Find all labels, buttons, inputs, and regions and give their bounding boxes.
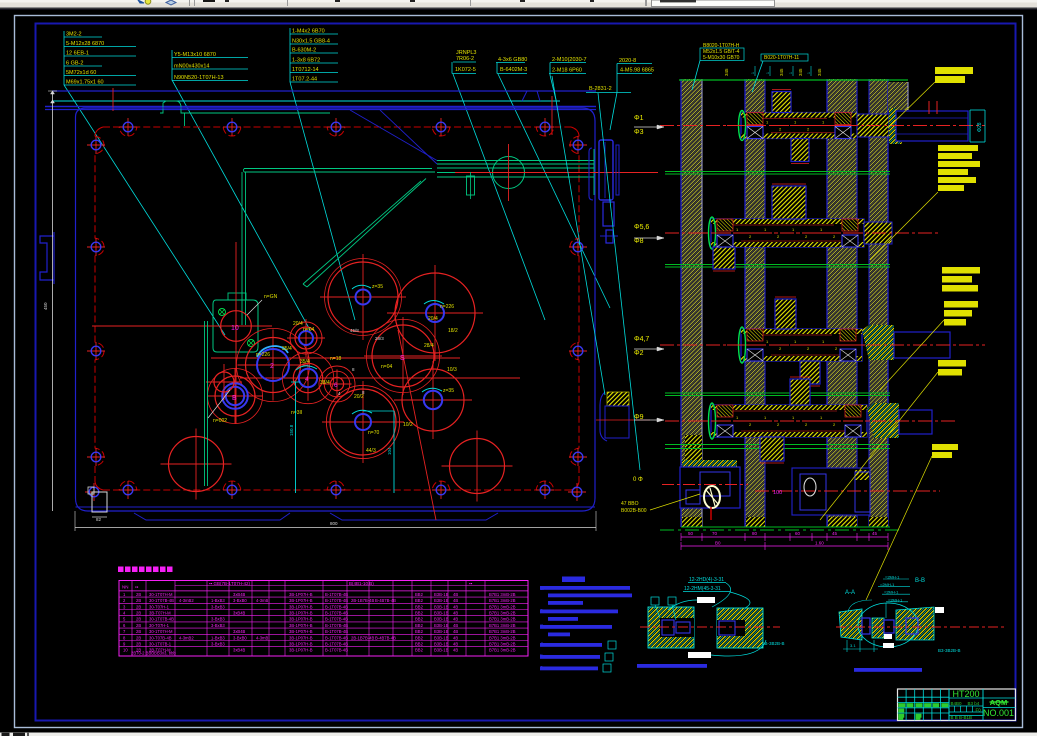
svg-text:BB2: BB2 xyxy=(415,617,424,622)
svg-text:3B-1P07H-B: 3B-1P07H-B xyxy=(289,617,313,622)
svg-text:3-BxB0: 3-BxB0 xyxy=(233,635,247,640)
svg-text:Φ2: Φ2 xyxy=(634,350,644,357)
svg-text:3.: 3. xyxy=(540,624,545,630)
svg-text:A-A: A-A xyxy=(845,590,855,596)
svg-text:B3B-1B: B3B-1B xyxy=(434,629,449,634)
svg-text:1-BxB3: 1-BxB3 xyxy=(211,635,225,640)
svg-text:345: 345 xyxy=(798,68,803,76)
svg-text:45/8: 45/8 xyxy=(350,328,359,333)
svg-text:2B: 2B xyxy=(136,635,141,640)
svg-text:▪▪ GB(7B-1T07H-42): ▪▪ GB(7B-1T07H-42) xyxy=(209,581,250,586)
svg-text:50: 50 xyxy=(688,531,694,536)
svg-text:1: 1 xyxy=(789,72,793,74)
svg-text:104: 104 xyxy=(387,447,392,455)
svg-text:Φ3: Φ3 xyxy=(634,129,644,136)
svg-text:▪▪: ▪▪ xyxy=(135,585,139,590)
svg-text:BB2: BB2 xyxy=(415,598,424,603)
svg-text:n=GN: n=GN xyxy=(264,294,278,300)
svg-text:30-1T07H-M: 30-1T07H-M xyxy=(149,629,173,634)
svg-text:4-3mB: 4-3mB xyxy=(256,635,269,640)
svg-text:1-BxB3: 1-BxB3 xyxy=(211,598,225,603)
svg-text:B7B1 3mB-2B: B7B1 3mB-2B xyxy=(489,617,516,622)
svg-text:▪▪: ▪▪ xyxy=(469,581,473,586)
svg-text:3B-T07H-M: 3B-T07H-M xyxy=(149,611,171,616)
svg-text:3xB4B: 3xB4B xyxy=(233,648,246,653)
svg-text:5.: 5. xyxy=(540,654,545,660)
svg-text:Φ5,6: Φ5,6 xyxy=(634,224,649,231)
svg-text:4B: 4B xyxy=(453,635,458,640)
svg-text:B7B1 3mB-2B: B7B1 3mB-2B xyxy=(489,648,516,653)
svg-text:n=04: n=04 xyxy=(303,327,314,333)
svg-text:345: 345 xyxy=(779,68,784,76)
svg-text:B3 b4: B3 b4 xyxy=(968,701,980,706)
svg-text:3B-1P07H-B: 3B-1P07H-B xyxy=(289,629,313,634)
svg-text:HT200: HT200 xyxy=(952,689,979,699)
svg-text:B4B0: B4B0 xyxy=(951,701,963,706)
svg-text:B3B-1B: B3B-1B xyxy=(434,611,449,616)
svg-text:2B: 2B xyxy=(136,617,141,622)
svg-text:4.: 4. xyxy=(540,642,545,648)
svg-text:B3B-1B: B3B-1B xyxy=(434,623,449,628)
svg-text:6.: 6. xyxy=(540,666,545,672)
svg-text:BB2: BB2 xyxy=(415,642,424,647)
svg-text:2B: 2B xyxy=(136,611,141,616)
svg-text:3-BxB3: 3-BxB3 xyxy=(211,642,225,647)
svg-text:1K072-5: 1K072-5 xyxy=(455,67,476,73)
svg-text:n=226: n=226 xyxy=(256,352,270,358)
svg-text:B-1T07B-4B: B-1T07B-4B xyxy=(325,635,348,640)
svg-text:10/3: 10/3 xyxy=(447,367,457,373)
svg-text:B-1T07B-4B: B-1T07B-4B xyxy=(325,604,348,609)
svg-text:=2MH-1: =2MH-1 xyxy=(888,597,903,602)
svg-text:4B: 4B xyxy=(453,617,458,622)
svg-text:B-4B7B-4B: B-4B7B-4B xyxy=(375,635,396,640)
svg-text:150.8: 150.8 xyxy=(289,424,294,436)
svg-text:4B: 4B xyxy=(453,611,458,616)
svg-text:2B-1B7B-4B: 2B-1B7B-4B xyxy=(351,635,374,640)
svg-text:n=18: n=18 xyxy=(330,356,341,362)
svg-text:10/2: 10/2 xyxy=(403,422,413,428)
svg-text:3B-1P07H-B: 3B-1P07H-B xyxy=(289,623,313,628)
svg-text:45: 45 xyxy=(872,531,878,536)
svg-text:B-1T07B-4B: B-1T07B-4B xyxy=(325,648,348,653)
svg-text:4B: 4B xyxy=(453,598,458,603)
svg-text:B-4B7B-4B: B-4B7B-4B xyxy=(375,598,396,603)
svg-text:3-BxB3: 3-BxB3 xyxy=(211,623,225,628)
svg-text:BB2: BB2 xyxy=(415,629,424,634)
svg-text:B3B-1B: B3B-1B xyxy=(434,648,449,653)
svg-text:z=35: z=35 xyxy=(372,284,383,290)
svg-text:2B: 2B xyxy=(136,623,141,628)
svg-text:4B: 4B xyxy=(453,642,458,647)
svg-text:3.1: 3.1 xyxy=(850,643,856,648)
svg-text:1: 1 xyxy=(766,72,770,74)
svg-text:B3B-1B: B3B-1B xyxy=(434,617,449,622)
svg-text:B-6402M-3: B-6402M-3 xyxy=(500,67,527,73)
svg-text:BB2: BB2 xyxy=(415,611,424,616)
svg-text:B-1T07B-4B: B-1T07B-4B xyxy=(325,617,348,622)
svg-text:2B70-2 BBBBB3x3, bbb: 2B70-2 BBBBB3x3, bbb xyxy=(131,651,176,656)
svg-text:4-M5.98 6865: 4-M5.98 6865 xyxy=(620,68,654,74)
svg-text:n=226: n=226 xyxy=(440,304,454,310)
svg-text:B3B-1B: B3B-1B xyxy=(434,642,449,647)
svg-text:4-3mB: 4-3mB xyxy=(256,598,269,603)
svg-text:B002B-B00: B002B-B00 xyxy=(621,508,647,514)
svg-text:20/4: 20/4 xyxy=(293,321,303,327)
svg-text:B7B1 3mB-2B: B7B1 3mB-2B xyxy=(489,629,516,634)
svg-text:80: 80 xyxy=(752,531,758,536)
svg-text:=2MH-1: =2MH-1 xyxy=(885,575,900,580)
svg-text:3xB4B: 3xB4B xyxy=(233,592,246,597)
svg-text:3-BxB3: 3-BxB3 xyxy=(211,604,225,609)
svg-text:4-3mB2: 4-3mB2 xyxy=(179,598,194,603)
svg-text:B3B-1B: B3B-1B xyxy=(434,592,449,597)
svg-text:1: 1 xyxy=(751,72,755,74)
svg-text:BB2: BB2 xyxy=(415,604,424,609)
svg-text:3B-1P07H-B: 3B-1P07H-B xyxy=(289,648,313,653)
svg-text:Φ4,7: Φ4,7 xyxy=(634,336,649,343)
svg-text:NN: NN xyxy=(122,585,129,590)
svg-text:3xB4B: 3xB4B xyxy=(233,611,246,616)
svg-text:20/4: 20/4 xyxy=(428,316,438,322)
svg-text:70: 70 xyxy=(712,531,718,536)
svg-text:B-1T07B-4B: B-1T07B-4B xyxy=(325,623,348,628)
svg-text:Φ28: Φ28 xyxy=(977,122,983,132)
svg-text:n=002: n=002 xyxy=(213,418,227,424)
svg-text:7R06-2: 7R06-2 xyxy=(456,56,474,62)
svg-text:10: 10 xyxy=(123,648,128,653)
svg-text:2B: 2B xyxy=(136,629,141,634)
svg-text:=2MH-1: =2MH-1 xyxy=(880,582,895,587)
svg-text:B7B1 3mB-2B: B7B1 3mB-2B xyxy=(489,642,516,647)
svg-text:800: 800 xyxy=(330,521,338,526)
svg-text:1: 1 xyxy=(807,72,811,74)
svg-text:B-1T07B-4B: B-1T07B-4B xyxy=(325,629,348,634)
svg-text:18/2: 18/2 xyxy=(448,328,458,334)
svg-text:82: 82 xyxy=(96,517,102,522)
svg-text:5-M10x30 GB70: 5-M10x30 GB70 xyxy=(703,55,740,61)
svg-text:B: B xyxy=(232,395,237,402)
svg-text:2B: 2B xyxy=(136,598,141,603)
svg-text:4B: 4B xyxy=(453,604,458,609)
svg-text:30-1T07B-1: 30-1T07B-1 xyxy=(149,642,172,647)
svg-text:B7B1 3mB-2B: B7B1 3mB-2B xyxy=(489,623,516,628)
svg-text:4B: 4B xyxy=(453,623,458,628)
svg-text:B3B-1B: B3B-1B xyxy=(434,604,449,609)
svg-text:z=35: z=35 xyxy=(443,388,454,394)
svg-text:44/3: 44/3 xyxy=(366,448,376,454)
svg-text:n=70: n=70 xyxy=(368,430,379,436)
svg-text:3B-1P07H-B: 3B-1P07H-B xyxy=(289,604,313,609)
svg-text:2B-1B7B-4B: 2B-1B7B-4B xyxy=(351,598,374,603)
svg-text:3B-1P07H-B: 3B-1P07H-B xyxy=(289,642,313,647)
svg-text:B-1T07B-4B: B-1T07B-4B xyxy=(325,598,348,603)
svg-text:10: 10 xyxy=(231,325,239,332)
svg-text:3B-1P07H-B: 3B-1P07H-B xyxy=(289,598,313,603)
svg-text:12-2HD(4)-3-31: 12-2HD(4)-3-31 xyxy=(689,577,724,583)
svg-text:n=3II: n=3II xyxy=(291,410,302,416)
svg-text:2B: 2B xyxy=(136,604,141,609)
svg-text:B3B-1B: B3B-1B xyxy=(434,598,449,603)
svg-text:BB2: BB2 xyxy=(415,648,424,653)
svg-text:450: 450 xyxy=(43,302,48,310)
svg-text:2: 2 xyxy=(270,363,274,370)
svg-text:28/3: 28/3 xyxy=(375,336,384,341)
svg-text:F0: F0 xyxy=(976,707,982,712)
svg-text:n=04: n=04 xyxy=(381,364,392,370)
svg-text:B3-3B2B-B: B3-3B2B-B xyxy=(938,648,961,653)
svg-text:B0: B0 xyxy=(715,541,721,546)
svg-text:=2MH-1: =2MH-1 xyxy=(884,590,899,595)
svg-text:3-BxB3: 3-BxB3 xyxy=(211,617,225,622)
svg-text:BB2: BB2 xyxy=(415,592,424,597)
svg-text:3B-1P07H-B: 3B-1P07H-B xyxy=(289,592,313,597)
svg-text:B-1T07B-4B: B-1T07B-4B xyxy=(325,642,348,647)
svg-text:3B-1P07H-B: 3B-1P07H-B xyxy=(289,635,313,640)
svg-text:1B-3B2B-B: 1B-3B2B-B xyxy=(762,641,785,646)
svg-text:30-1T07H-M: 30-1T07H-M xyxy=(149,592,173,597)
svg-text:28/4: 28/4 xyxy=(424,343,434,349)
svg-text:30-T07H-1: 30-T07H-1 xyxy=(149,604,170,609)
svg-text:30-T07B-4B: 30-T07B-4B xyxy=(149,635,172,640)
svg-text:B7B1 3mB-2B: B7B1 3mB-2B xyxy=(489,635,516,640)
svg-text:Φ8: Φ8 xyxy=(634,238,644,245)
svg-text:345: 345 xyxy=(817,68,822,76)
svg-text:60: 60 xyxy=(795,531,801,536)
svg-text:S: S xyxy=(400,355,405,362)
svg-text:B7B1 3mB-2B: B7B1 3mB-2B xyxy=(489,611,516,616)
svg-text:12-2HM(45-3-31: 12-2HM(45-3-31 xyxy=(684,586,721,592)
svg-text:BB2: BB2 xyxy=(415,623,424,628)
svg-text:2-M18 6P60: 2-M18 6P60 xyxy=(552,68,582,74)
svg-text:35/4: 35/4 xyxy=(282,346,292,352)
svg-text:30-T07H-1: 30-T07H-1 xyxy=(149,623,170,628)
svg-text:B-1T07B-4B: B-1T07B-4B xyxy=(325,611,348,616)
svg-text:38/4: 38/4 xyxy=(320,380,330,386)
svg-text:30-1T07B-4B: 30-1T07B-4B xyxy=(149,598,174,603)
svg-text:30-1T07B-4B: 30-1T07B-4B xyxy=(149,617,174,622)
svg-text:4B: 4B xyxy=(453,648,458,653)
svg-text:B(4B1-10.B): B(4B1-10.B) xyxy=(349,581,374,586)
svg-text:3-BxB0: 3-BxB0 xyxy=(233,598,247,603)
svg-text:3.: 3. xyxy=(540,609,545,615)
svg-text:0 Φ: 0 Φ xyxy=(633,477,643,483)
svg-text:B-B: B-B xyxy=(915,578,925,584)
svg-text:2B: 2B xyxy=(136,592,141,597)
svg-text:35/4: 35/4 xyxy=(300,359,310,365)
svg-text:B3B-1B: B3B-1B xyxy=(434,635,449,640)
svg-text:BB2: BB2 xyxy=(415,635,424,640)
svg-text:3B-1P07H-B: 3B-1P07H-B xyxy=(289,611,313,616)
svg-text:1.60: 1.60 xyxy=(815,541,824,546)
svg-text:B7B1 3mB-2B: B7B1 3mB-2B xyxy=(489,592,516,597)
svg-text:100: 100 xyxy=(773,490,782,496)
svg-text:4-3mB2: 4-3mB2 xyxy=(179,635,194,640)
svg-text:B7B1 3mB-2B: B7B1 3mB-2B xyxy=(489,604,516,609)
svg-text:4B: 4B xyxy=(453,592,458,597)
svg-text:45: 45 xyxy=(832,531,838,536)
svg-text:B7B1 3mB-2B: B7B1 3mB-2B xyxy=(489,598,516,603)
svg-text:6: 6 xyxy=(334,382,338,389)
svg-text:2B: 2B xyxy=(136,642,141,647)
svg-text:47 BBO: 47 BBO xyxy=(621,501,639,507)
svg-text:B-1T07B-4B: B-1T07B-4B xyxy=(325,592,348,597)
svg-text:Φ1: Φ1 xyxy=(634,115,644,122)
svg-text:B020-1T07H-11: B020-1T07H-11 xyxy=(764,55,799,61)
svg-text:345: 345 xyxy=(724,68,729,76)
svg-text:4B: 4B xyxy=(453,629,458,634)
svg-text:4: 4 xyxy=(305,376,309,383)
svg-text:3xB4B: 3xB4B xyxy=(233,629,246,634)
svg-text:NO.001: NO.001 xyxy=(983,708,1014,718)
svg-text:B B B-B1B: B B B-B1B xyxy=(951,715,973,720)
svg-text:1.: 1. xyxy=(540,586,545,592)
